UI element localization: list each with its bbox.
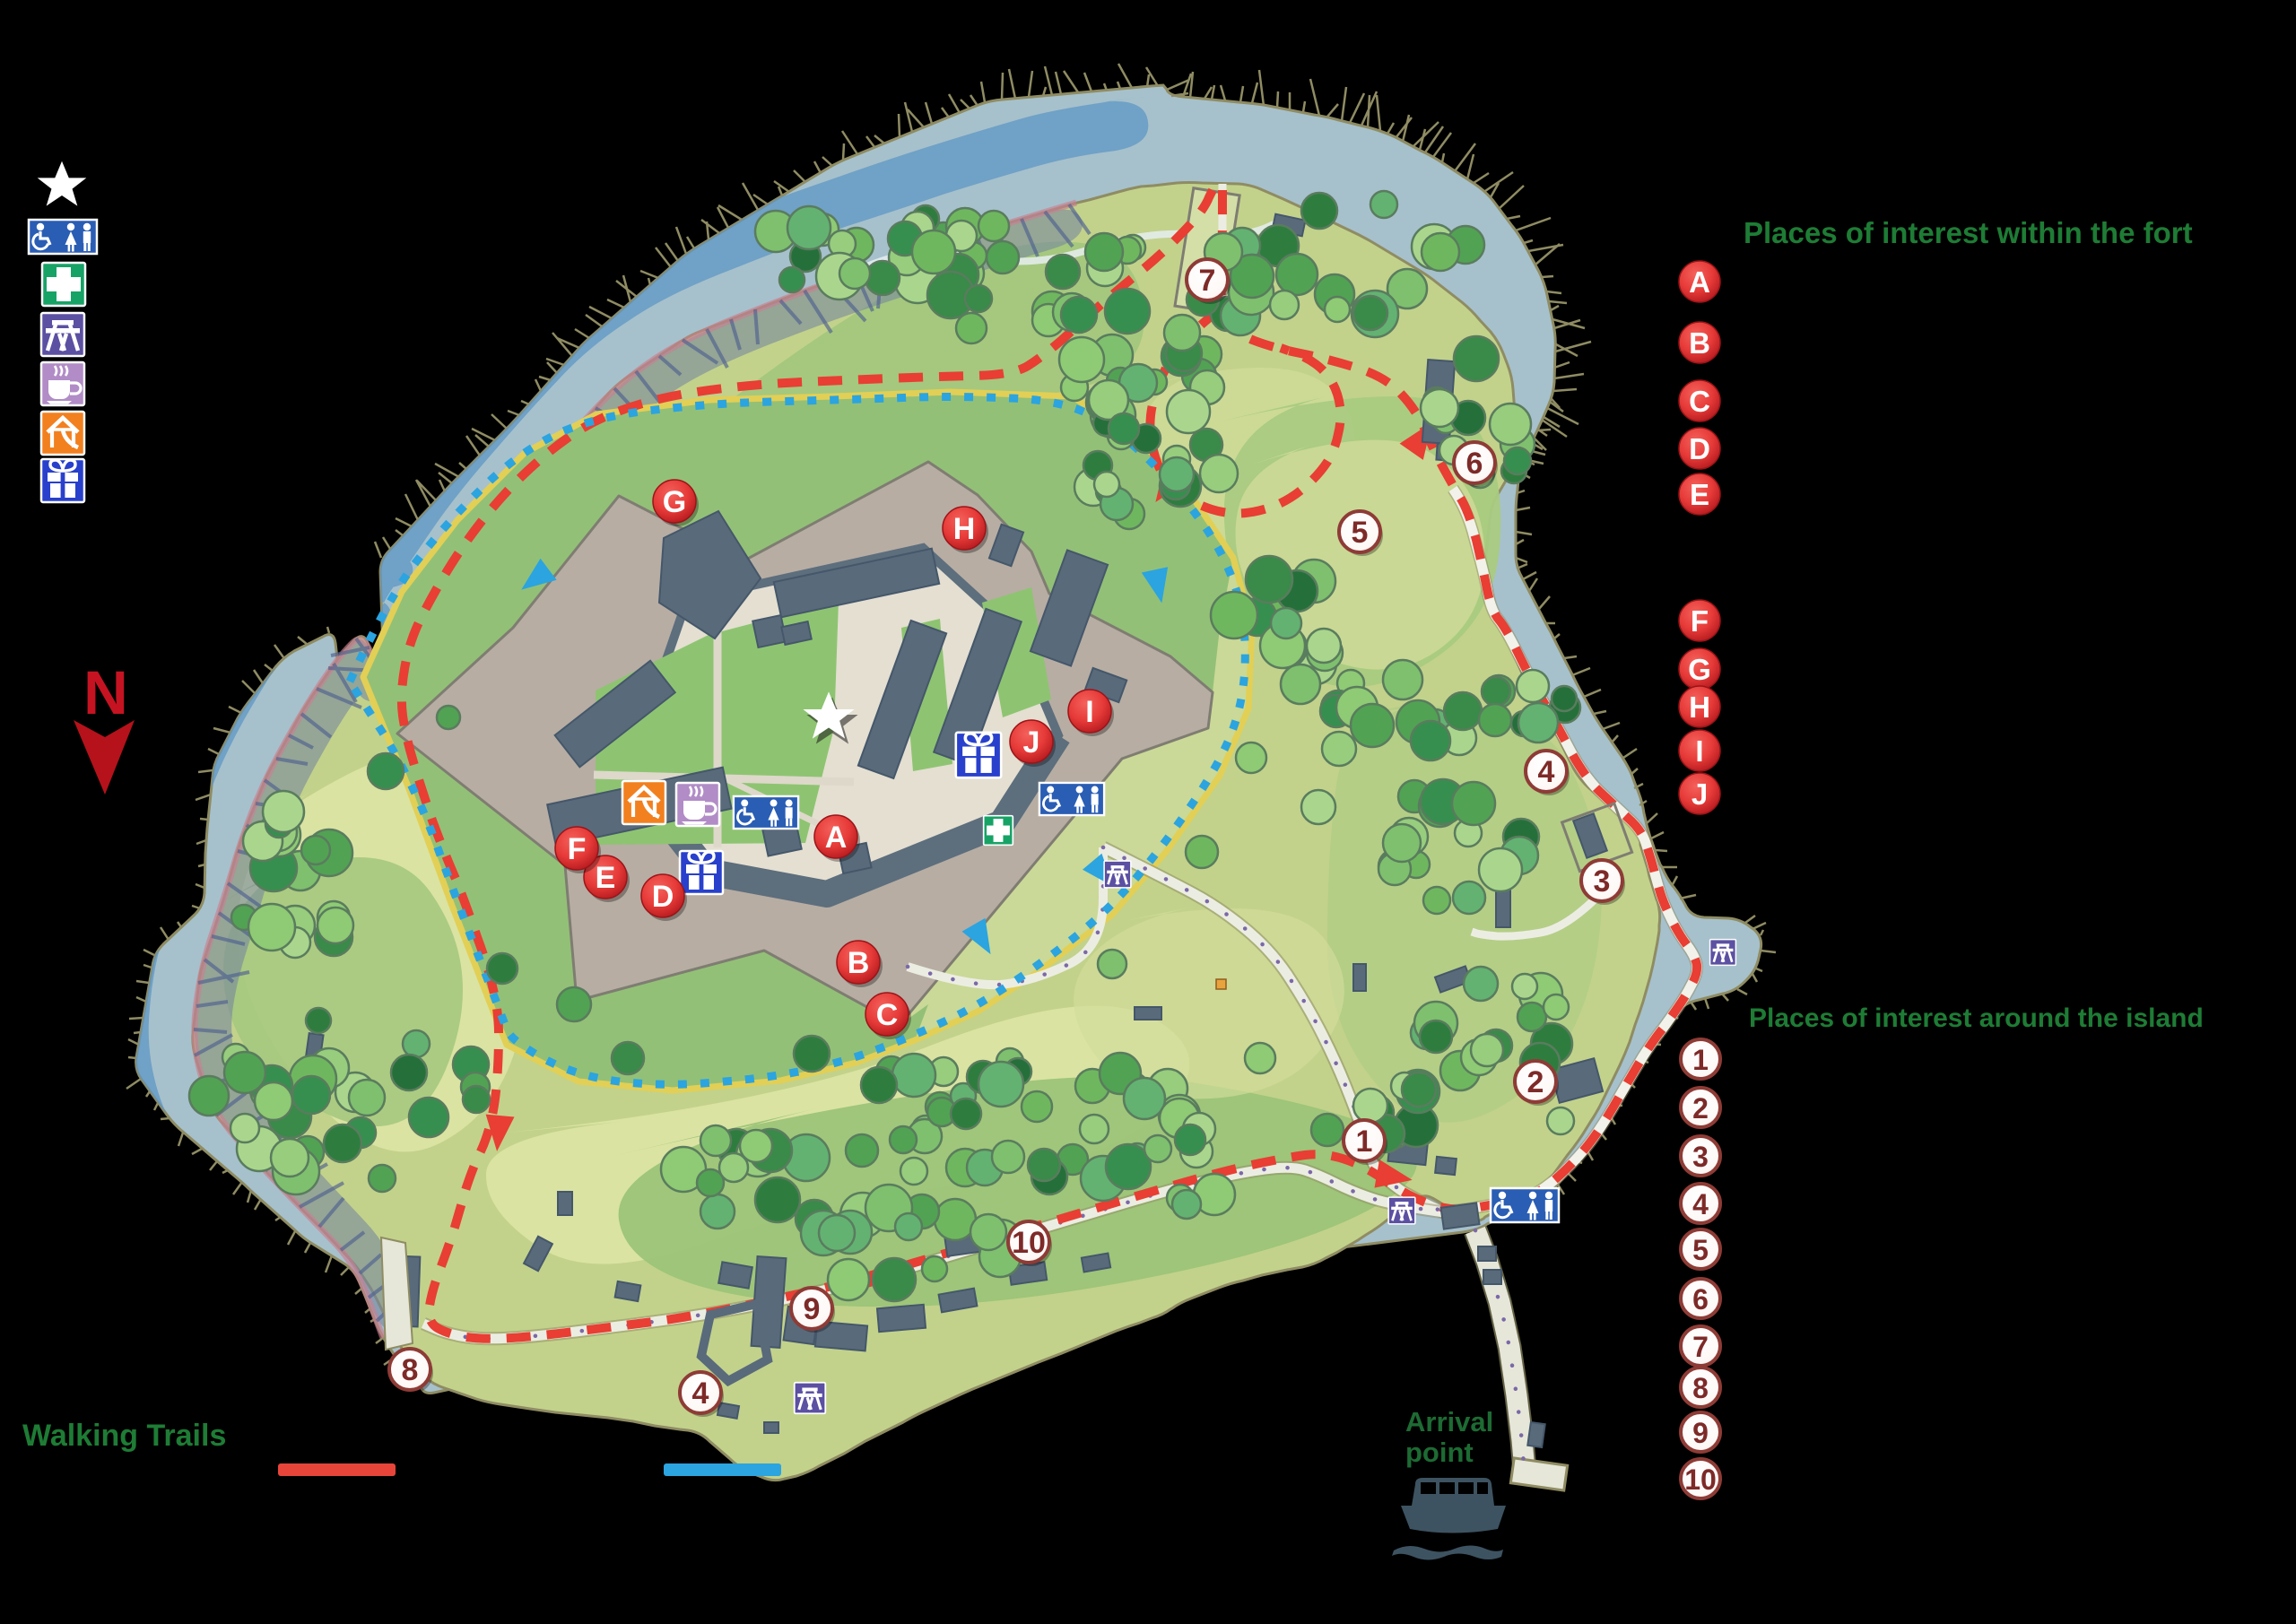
svg-text:N: N <box>83 658 128 727</box>
svg-text:F: F <box>1691 604 1709 638</box>
svg-text:7: 7 <box>1199 264 1216 298</box>
svg-text:5: 5 <box>1352 516 1369 550</box>
svg-text:J: J <box>1692 777 1708 811</box>
svg-text:B: B <box>1689 326 1710 360</box>
svg-text:9: 9 <box>804 1292 821 1326</box>
svg-text:Arrival: Arrival <box>1405 1406 1493 1437</box>
svg-text:point: point <box>1405 1437 1474 1468</box>
svg-text:2: 2 <box>1692 1092 1709 1125</box>
svg-text:J: J <box>1023 725 1040 760</box>
svg-text:4: 4 <box>1538 755 1555 789</box>
svg-text:I: I <box>1695 734 1703 768</box>
svg-text:3: 3 <box>1594 864 1611 899</box>
svg-text:10: 10 <box>1012 1226 1046 1260</box>
svg-text:E: E <box>596 861 616 895</box>
svg-text:7: 7 <box>1692 1331 1709 1363</box>
svg-text:G: G <box>1688 653 1711 686</box>
svg-text:A: A <box>1689 265 1710 299</box>
svg-text:5: 5 <box>1692 1234 1709 1266</box>
svg-text:H: H <box>953 512 976 546</box>
svg-text:1: 1 <box>1356 1125 1373 1159</box>
svg-text:8: 8 <box>1692 1372 1709 1404</box>
svg-text:D: D <box>1689 432 1710 465</box>
svg-text:6: 6 <box>1466 447 1483 481</box>
svg-text:8: 8 <box>402 1353 419 1387</box>
svg-text:9: 9 <box>1692 1417 1709 1449</box>
svg-text:1: 1 <box>1692 1044 1709 1076</box>
svg-text:D: D <box>652 880 674 914</box>
svg-text:F: F <box>568 832 587 866</box>
svg-text:H: H <box>1689 690 1710 724</box>
svg-text:3: 3 <box>1692 1141 1709 1173</box>
svg-text:Walking Trails: Walking Trails <box>22 1419 226 1453</box>
svg-text:G: G <box>663 485 686 519</box>
svg-text:A: A <box>825 821 848 855</box>
svg-text:4: 4 <box>1692 1188 1709 1220</box>
svg-text:I: I <box>1085 695 1093 729</box>
svg-text:10: 10 <box>1684 1463 1717 1496</box>
svg-text:C: C <box>1689 385 1710 418</box>
svg-text:B: B <box>848 946 870 980</box>
svg-text:Places of interest within the: Places of interest within the fort <box>1744 216 2193 249</box>
svg-text:E: E <box>1690 478 1709 511</box>
svg-text:2: 2 <box>1527 1065 1544 1099</box>
svg-text:4: 4 <box>692 1376 709 1411</box>
svg-text:Places of interest around the: Places of interest around the island <box>1749 1003 2204 1033</box>
svg-text:6: 6 <box>1692 1283 1709 1316</box>
svg-text:C: C <box>876 998 899 1032</box>
